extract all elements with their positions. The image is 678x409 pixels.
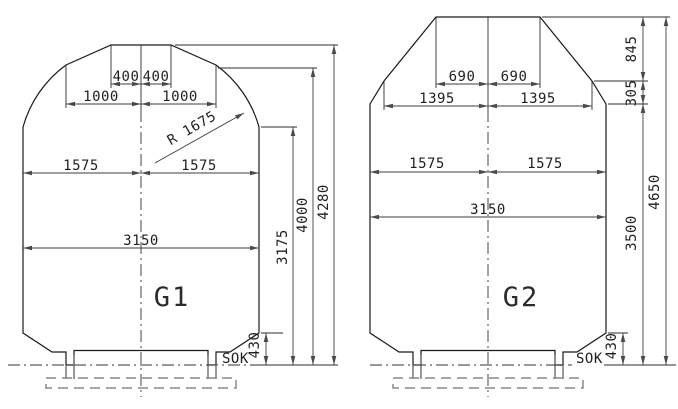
g2-dim-305: 305 bbox=[624, 80, 640, 107]
g2-figure: 690 690 1395 1395 1575 1575 3150 845 305… bbox=[370, 17, 676, 397]
g1-dim-3150: 3150 bbox=[123, 233, 159, 249]
g1-dim-1000-right: 1000 bbox=[162, 89, 198, 105]
g2-gauge-label: G2 bbox=[503, 282, 540, 313]
loading-gauge-drawing: 400 400 1000 1000 1575 1575 3150 R 1675 … bbox=[0, 0, 678, 409]
g2-dim-1395-right: 1395 bbox=[520, 91, 556, 107]
g2-sok-label: SOK bbox=[576, 351, 603, 367]
g2-dim-845: 845 bbox=[624, 36, 640, 63]
g2-dim-1575-left: 1575 bbox=[409, 156, 445, 172]
g2-dim-3500: 3500 bbox=[624, 215, 640, 251]
g1-sok-label: SOK bbox=[222, 351, 249, 367]
technical-drawing-canvas: 400 400 1000 1000 1575 1575 3150 R 1675 … bbox=[0, 0, 678, 409]
g2-dim-430: 430 bbox=[604, 333, 620, 360]
g2-dim-4650: 4650 bbox=[647, 174, 663, 210]
g1-dim-400-right: 400 bbox=[143, 69, 170, 85]
g1-dim-4280: 4280 bbox=[316, 184, 332, 220]
g1-dim-400-left: 400 bbox=[113, 69, 140, 85]
g1-dim-1575-right: 1575 bbox=[181, 158, 217, 174]
g2-dim-3150: 3150 bbox=[470, 202, 506, 218]
g2-dim-1575-right: 1575 bbox=[527, 156, 563, 172]
g1-radius-label: R 1675 bbox=[165, 108, 219, 149]
g1-dim-3175: 3175 bbox=[275, 229, 291, 265]
g1-dim-1575-left: 1575 bbox=[63, 158, 99, 174]
g1-dim-430: 430 bbox=[247, 332, 263, 359]
g2-dim-690-left: 690 bbox=[449, 69, 476, 85]
g2-dim-1395-left: 1395 bbox=[419, 91, 455, 107]
g1-dim-1000-left: 1000 bbox=[83, 89, 119, 105]
g2-dim-690-right: 690 bbox=[501, 69, 528, 85]
g1-gauge-label: G1 bbox=[154, 282, 191, 313]
g1-dim-4000: 4000 bbox=[295, 197, 311, 233]
g1-figure: 400 400 1000 1000 1575 1575 3150 R 1675 … bbox=[8, 45, 338, 397]
